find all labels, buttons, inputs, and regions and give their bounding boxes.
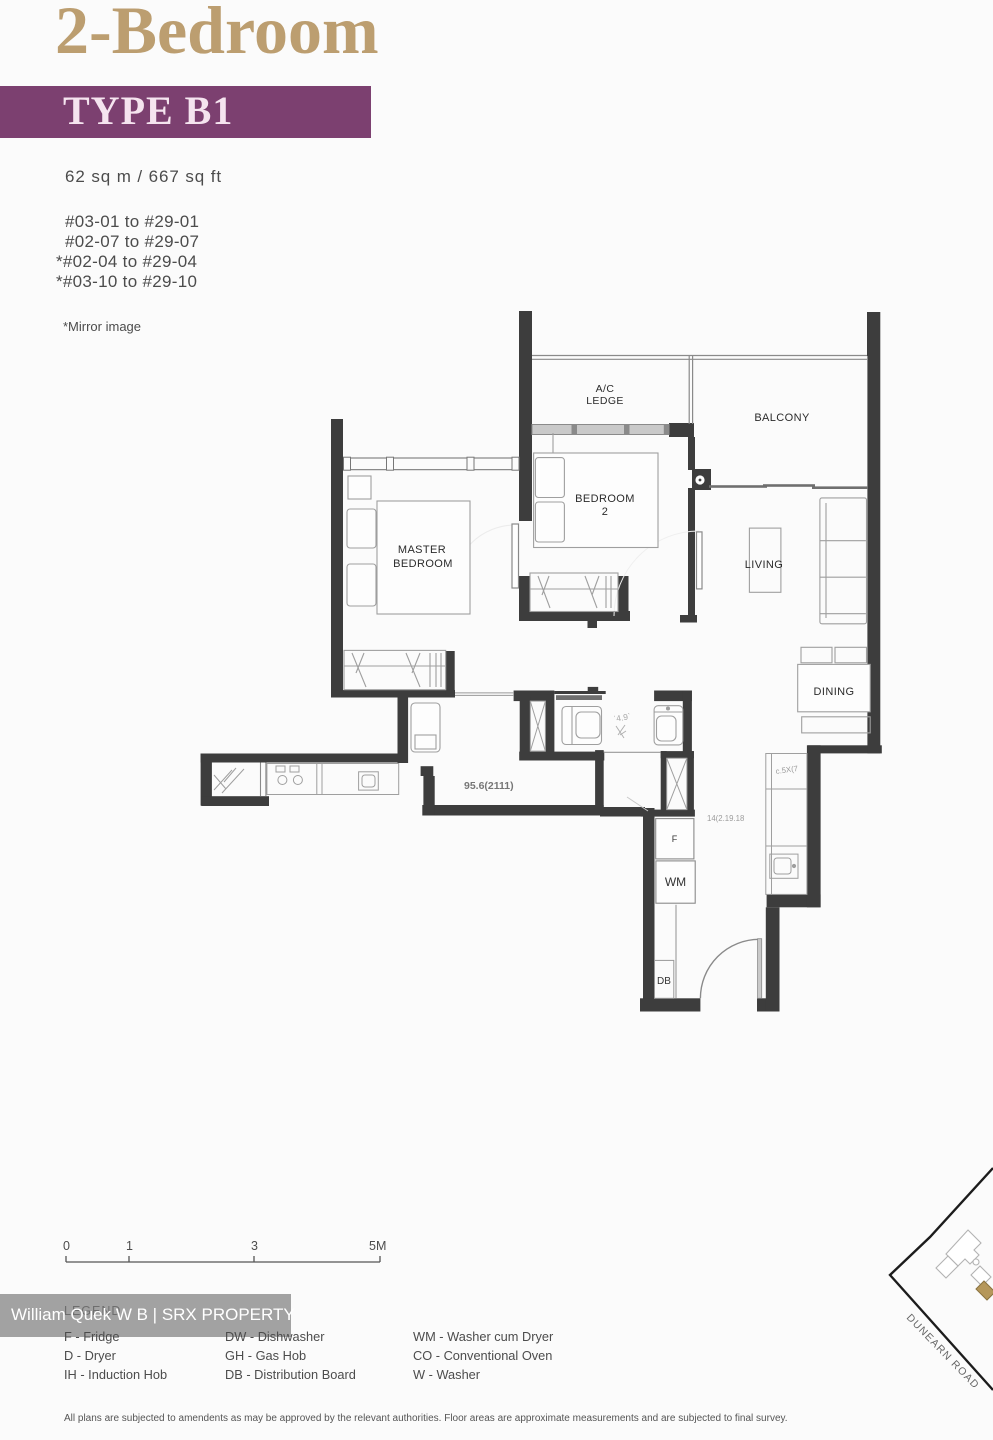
- svg-text:DB: DB: [657, 976, 671, 987]
- svg-text:DUNEARN ROAD: DUNEARN ROAD: [904, 1312, 982, 1392]
- svg-text:BEDROOM: BEDROOM: [575, 493, 635, 505]
- svg-text:BALCONY: BALCONY: [754, 412, 810, 424]
- svg-text:MASTER: MASTER: [398, 544, 446, 556]
- svg-text:14(2.19.18: 14(2.19.18: [707, 814, 744, 823]
- svg-text:2: 2: [602, 506, 609, 518]
- svg-text:LEDGE: LEDGE: [586, 395, 624, 407]
- svg-text:1: 1: [126, 1239, 133, 1253]
- svg-text:A/C: A/C: [596, 383, 615, 395]
- svg-text:c.5X(7: c.5X(7: [775, 764, 799, 776]
- svg-text:0: 0: [63, 1239, 70, 1253]
- svg-text:BEDROOM: BEDROOM: [393, 558, 453, 570]
- svg-text:LIVING: LIVING: [745, 559, 783, 571]
- svg-text:ˈ4.9ˋ: ˈ4.9ˋ: [613, 711, 632, 724]
- svg-text:5M: 5M: [369, 1239, 386, 1253]
- svg-text:95.6(2111): 95.6(2111): [464, 780, 514, 792]
- svg-text:F: F: [672, 834, 678, 844]
- svg-text:DINING: DINING: [814, 686, 855, 698]
- svg-text:WM: WM: [665, 875, 686, 889]
- svg-text:3: 3: [251, 1239, 258, 1253]
